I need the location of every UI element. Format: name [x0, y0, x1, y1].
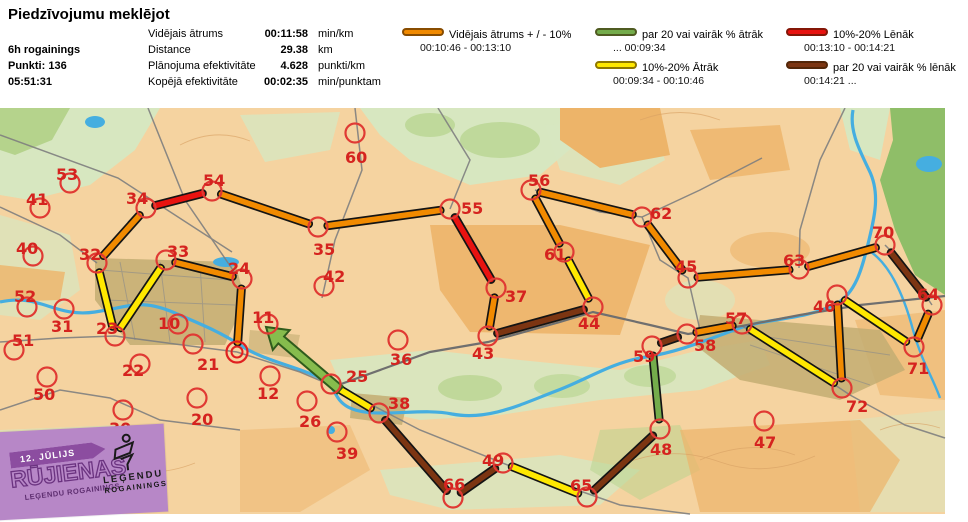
event-logo: 12. JŪLIJS RŪJIENAS LEĢENDU ROGAININGS L… [0, 424, 168, 521]
control-label-26: 26 [299, 412, 321, 431]
control-label-59: 59 [633, 347, 655, 366]
legend-item-fast10: 10%-20% Ātrāk 00:09:34 - 00:10:46 [595, 61, 718, 87]
control-label-37: 37 [505, 287, 527, 306]
legend-label: par 20 vai vairāk % ātrāk [642, 29, 763, 41]
legend-swatch-fast10 [595, 61, 637, 69]
legend-item-fast20: par 20 vai vairāk % ātrāk ... 00:09:34 [595, 28, 763, 54]
route-leg-S-24 [238, 289, 242, 342]
control-label-32: 32 [79, 245, 101, 264]
control-label-33: 33 [167, 242, 189, 261]
legend-swatch-fast20 [595, 28, 637, 36]
control-label-38: 38 [388, 394, 410, 413]
legend-range: 00:14:21 ... [804, 75, 956, 87]
control-label-20: 20 [191, 410, 213, 429]
legend-range: 00:10:46 - 00:13:10 [420, 42, 571, 54]
stat-value: 00:11:58 [240, 28, 308, 40]
control-label-44: 44 [578, 314, 600, 333]
control-label-51: 51 [12, 331, 34, 350]
legend-label: 10%-20% Ātrāk [642, 62, 718, 74]
legend-swatch-slow20 [786, 61, 828, 69]
legend-item-slow10: 10%-20% Lēnāk 00:13:10 - 00:14:21 [786, 28, 914, 54]
control-label-11: 11 [252, 308, 274, 327]
stat-value: 29.38 [240, 44, 308, 56]
control-label-25: 25 [346, 367, 368, 386]
control-label-50: 50 [33, 385, 55, 404]
control-label-45: 45 [675, 257, 697, 276]
orienteer-icon [106, 430, 147, 474]
legend-range: 00:09:34 - 00:10:46 [613, 75, 718, 87]
control-label-39: 39 [336, 444, 358, 463]
control-label-47: 47 [754, 433, 776, 452]
legend-range: 00:13:10 - 00:14:21 [804, 42, 914, 54]
control-label-10: 10 [158, 314, 180, 333]
control-label-22: 22 [122, 361, 144, 380]
control-label-54: 54 [203, 171, 225, 190]
legend-label: Vidējais ātrums + / - 10% [449, 29, 571, 41]
control-label-53: 53 [56, 165, 78, 184]
legend-label: par 20 vai vairāk % lēnāk [833, 62, 956, 74]
control-label-36: 36 [390, 350, 412, 369]
page-title: Piedzīvojumu meklējot [8, 6, 170, 23]
control-label-24: 24 [228, 259, 250, 278]
control-label-62: 62 [650, 204, 672, 223]
control-label-66: 66 [443, 475, 465, 494]
control-label-52: 52 [14, 287, 36, 306]
legend-item-slow20: par 20 vai vairāk % lēnāk 00:14:21 ... [786, 61, 956, 87]
control-label-60: 60 [345, 148, 367, 167]
control-label-61: 61 [544, 245, 566, 264]
control-label-55: 55 [461, 199, 483, 218]
control-label-70: 70 [872, 223, 894, 242]
legend-swatch-slow10 [786, 28, 828, 36]
control-label-72: 72 [846, 397, 868, 416]
control-label-71: 71 [907, 359, 929, 378]
control-label-12: 12 [257, 384, 279, 403]
control-label-23: 23 [96, 319, 118, 338]
legend-swatch-avg [402, 28, 444, 36]
event-points: Punkti: 136 [8, 60, 67, 72]
stat-value: 00:02:35 [240, 76, 308, 88]
control-label-42: 42 [323, 267, 345, 286]
stat-unit: min/punktam [318, 76, 381, 88]
control-label-48: 48 [650, 440, 672, 459]
control-label-34: 34 [126, 189, 148, 208]
control-label-58: 58 [694, 336, 716, 355]
stat-unit: punkti/km [318, 60, 365, 72]
control-label-21: 21 [197, 355, 219, 374]
stat-value: 4.628 [240, 60, 308, 72]
control-label-49: 49 [482, 451, 504, 470]
control-label-46: 46 [813, 297, 835, 316]
control-label-41: 41 [26, 190, 48, 209]
legend-label: 10%-20% Lēnāk [833, 29, 914, 41]
control-label-57: 57 [725, 309, 747, 328]
stat-unit: km [318, 44, 333, 56]
control-label-31: 31 [51, 317, 73, 336]
control-label-64: 64 [917, 285, 939, 304]
control-label-63: 63 [783, 251, 805, 270]
legend-item-avg: Vidējais ātrums + / - 10% 00:10:46 - 00:… [402, 28, 571, 54]
control-label-56: 56 [528, 171, 550, 190]
route-leg-46-72 [838, 305, 842, 378]
legend-range: ... 00:09:34 [613, 42, 763, 54]
event-time: 05:51:31 [8, 76, 52, 88]
control-label-43: 43 [472, 344, 494, 363]
header: Piedzīvojumu meklējot 6h rogainings Punk… [0, 0, 968, 108]
stat-unit: min/km [318, 28, 353, 40]
control-label-40: 40 [16, 239, 38, 258]
control-label-35: 35 [313, 240, 335, 259]
control-label-65: 65 [570, 476, 592, 495]
event-name: 6h rogainings [8, 44, 80, 56]
